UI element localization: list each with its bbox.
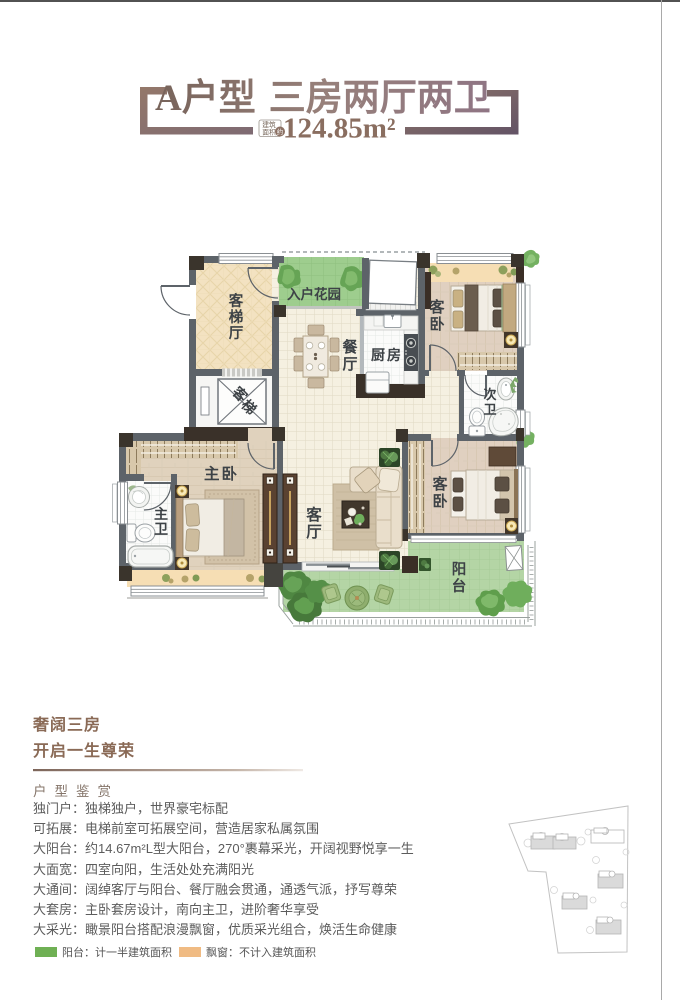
svg-text:卫: 卫 bbox=[483, 402, 496, 417]
svg-text:客: 客 bbox=[431, 475, 448, 493]
svg-text:大面宽：四室向阳，生活处处充满阳光: 大面宽：四室向阳，生活处处充满阳光 bbox=[33, 862, 254, 877]
svg-text:厅: 厅 bbox=[229, 325, 244, 342]
svg-text:餐: 餐 bbox=[342, 338, 358, 356]
svg-text:开启一生尊荣: 开启一生尊荣 bbox=[33, 741, 135, 760]
svg-text:台: 台 bbox=[452, 577, 467, 595]
svg-text:入户花园: 入户花园 bbox=[287, 286, 341, 302]
svg-text:独门户：独梯独户，世界豪宅标配: 独门户：独梯独户，世界豪宅标配 bbox=[33, 801, 228, 816]
svg-text:奢阔三房: 奢阔三房 bbox=[32, 715, 101, 734]
svg-text:梯: 梯 bbox=[229, 308, 244, 326]
svg-text:次: 次 bbox=[483, 387, 496, 402]
svg-text:厨房: 厨房 bbox=[371, 347, 403, 363]
svg-text:卧: 卧 bbox=[432, 493, 447, 510]
svg-text:124.85m²: 124.85m² bbox=[283, 113, 396, 145]
svg-text:阳台：计一半建筑面积: 阳台：计一半建筑面积 bbox=[62, 945, 172, 959]
svg-text:建筑: 建筑 bbox=[262, 120, 276, 129]
svg-text:面积: 面积 bbox=[262, 128, 276, 137]
svg-text:可拓展：电梯前室可拓展空间，营造居家私属氛围: 可拓展：电梯前室可拓展空间，营造居家私属氛围 bbox=[33, 821, 319, 836]
svg-text:厅: 厅 bbox=[342, 356, 357, 373]
svg-text:大阳台：约14.67m²L型大阳台，270°裹幕采光，开阔视: 大阳台：约14.67m²L型大阳台，270°裹幕采光，开阔视野悦享一生 bbox=[33, 841, 414, 856]
svg-text:飘窗：不计入建筑面积: 飘窗：不计入建筑面积 bbox=[206, 945, 316, 959]
svg-text:客: 客 bbox=[428, 298, 445, 316]
svg-text:主: 主 bbox=[154, 506, 168, 522]
svg-text:大通间：阔绰客厅与阳台、餐厅融会贯通，通透气派，抒写尊荣: 大通间：阔绰客厅与阳台、餐厅融会贯通，通透气派，抒写尊荣 bbox=[33, 882, 397, 897]
svg-text:卫: 卫 bbox=[154, 521, 168, 537]
svg-text:大采光：瞰景阳台搭配浪漫飘窗，优质采光组合，焕活生命健康: 大采光：瞰景阳台搭配浪漫飘窗，优质采光组合，焕活生命健康 bbox=[33, 922, 397, 937]
svg-text:主卧: 主卧 bbox=[204, 464, 239, 483]
svg-text:户型鉴赏: 户型鉴赏 bbox=[33, 783, 119, 799]
svg-text:客: 客 bbox=[228, 292, 244, 310]
svg-text:厅: 厅 bbox=[306, 523, 322, 541]
svg-text:客: 客 bbox=[306, 505, 322, 524]
svg-text:大套房：主卧套房设计，南向主卫，进阶奢华享受: 大套房：主卧套房设计，南向主卫，进阶奢华享受 bbox=[33, 902, 319, 917]
svg-text:阳: 阳 bbox=[452, 561, 467, 578]
svg-text:卧: 卧 bbox=[429, 316, 444, 333]
